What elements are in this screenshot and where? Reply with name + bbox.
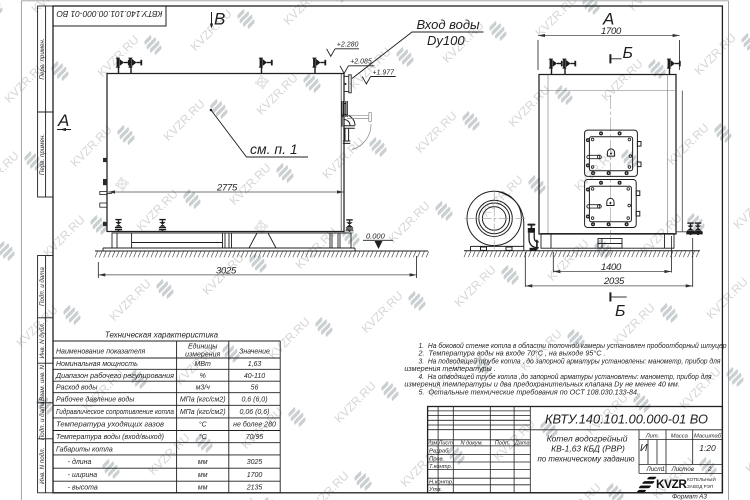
- svg-text:1400: 1400: [601, 262, 622, 273]
- svg-text:3025: 3025: [247, 459, 263, 466]
- svg-text:5. Остальные технические треб: 5. Остальные технические требования по О…: [419, 388, 639, 397]
- svg-text:KVZR.RU: KVZR.RU: [545, 237, 592, 284]
- svg-text:Дата: Дата: [514, 440, 530, 446]
- svg-text:KVZR.RU: KVZR.RU: [479, 173, 526, 220]
- svg-text:°С: °С: [199, 421, 208, 429]
- svg-text:KVZR.RU: KVZR.RU: [599, 57, 646, 104]
- svg-text:KVZR.RU: KVZR.RU: [161, 97, 208, 144]
- svg-text:Гидравлическое сопротивление к: Гидравлическое сопротивление котла: [56, 408, 174, 416]
- svg-text:KVZR.RU: KVZR.RU: [731, 185, 750, 232]
- svg-text:Формат: Формат: [672, 493, 698, 500]
- svg-text:2: 2: [707, 466, 712, 473]
- svg-text:измерения: измерения: [185, 351, 220, 358]
- svg-text:2035: 2035: [603, 276, 625, 287]
- svg-text:N докум.: N докум.: [460, 440, 483, 446]
- svg-text:мм: мм: [198, 485, 208, 492]
- svg-text:KVZR.RU: KVZR.RU: [134, 187, 181, 234]
- svg-text:KVZR.RU: KVZR.RU: [452, 263, 499, 310]
- svg-text:Б: Б: [623, 45, 633, 62]
- svg-text:1:20: 1:20: [699, 443, 716, 453]
- svg-text:+2.085: +2.085: [350, 59, 372, 66]
- svg-text:Перв. примен.: Перв. примен.: [39, 134, 46, 175]
- svg-text:+2.280: +2.280: [337, 42, 359, 49]
- svg-text:0.000: 0.000: [366, 232, 386, 241]
- svg-text:KVZR.RU: KVZR.RU: [0, 149, 22, 196]
- svg-text:Пров.: Пров.: [429, 456, 444, 462]
- svg-text:- длина: - длина: [56, 458, 92, 466]
- svg-text:KVZR.RU: KVZR.RU: [665, 121, 712, 168]
- svg-text:Вход воды: Вход воды: [417, 17, 481, 32]
- svg-text:3025: 3025: [216, 265, 237, 276]
- svg-text:Лист: Лист: [437, 440, 453, 446]
- svg-text:KVZR.RU: KVZR.RU: [413, 109, 460, 156]
- svg-text:KVZR.RU: KVZR.RU: [68, 123, 115, 170]
- svg-text:Расход воды: Расход воды: [56, 383, 98, 391]
- svg-text:Подп.: Подп.: [495, 440, 510, 446]
- svg-text:Н.контр.: Н.контр.: [429, 479, 454, 485]
- svg-text:Габариты котла: Габариты котла: [56, 445, 113, 453]
- svg-text:KVZR.RU: KVZR.RU: [557, 481, 604, 500]
- svg-text:KVZR.RU: KVZR.RU: [332, 379, 379, 426]
- svg-text:МПа (кгс/см2): МПа (кгс/см2): [180, 397, 226, 404]
- svg-text:KVZR.RU: KVZR.RU: [704, 275, 750, 322]
- svg-text:Значение: Значение: [239, 349, 270, 356]
- svg-text:Масса: Масса: [671, 433, 689, 439]
- svg-text:40-110: 40-110: [244, 373, 265, 380]
- svg-text:Инв. N дубл.: Инв. N дубл.: [39, 323, 46, 359]
- svg-text:- ширина: - ширина: [56, 472, 97, 479]
- svg-text:см. п. 1: см. п. 1: [250, 141, 298, 157]
- svg-text:Dy100: Dy100: [427, 33, 465, 48]
- svg-text:Лист: Лист: [646, 466, 663, 473]
- svg-text:Инв. N подл.: Инв. N подл.: [39, 448, 46, 484]
- svg-text:Диапазон рабочего регулировани: Диапазон рабочего регулирования: [55, 372, 174, 380]
- svg-text:Утв.: Утв.: [428, 487, 442, 493]
- svg-text:Температура воды (вход/выход): Температура воды (вход/выход): [56, 433, 164, 441]
- svg-text:Подп. и дата: Подп. и дата: [39, 267, 46, 306]
- svg-text:Взам. инв. N: Взам. инв. N: [39, 364, 46, 401]
- svg-text:КВ-1,63 КБД (РВР): КВ-1,63 КБД (РВР): [551, 444, 625, 454]
- svg-text:м3/ч: м3/ч: [196, 384, 211, 391]
- svg-text:мм: мм: [198, 472, 208, 479]
- svg-text:Номинальная мощность: Номинальная мощность: [56, 361, 138, 368]
- svg-text:Листов: Листов: [671, 466, 695, 473]
- svg-text:МВт: МВт: [195, 361, 212, 368]
- svg-text:А3: А3: [698, 493, 707, 500]
- svg-text:KVZR.RU: KVZR.RU: [107, 277, 154, 324]
- svg-text:2775: 2775: [216, 183, 238, 194]
- svg-text:Техническая характеристика: Техническая характеристика: [105, 331, 219, 340]
- svg-text:1700: 1700: [247, 472, 263, 479]
- svg-text:KVZR.RU: KVZR.RU: [41, 213, 88, 260]
- svg-text:ЗАВОД РЭП: ЗАВОД РЭП: [687, 484, 713, 489]
- svg-text:не более 280: не более 280: [233, 421, 276, 429]
- svg-text:KVZR.RU: KVZR.RU: [386, 199, 433, 246]
- svg-text:Перв. примен.: Перв. примен.: [39, 38, 46, 79]
- svg-text:Изм.: Изм.: [427, 440, 439, 446]
- svg-text:1,63: 1,63: [248, 361, 262, 368]
- svg-text:KVZR.RU: KVZR.RU: [320, 135, 367, 182]
- svg-text:Котел водогрейный: Котел водогрейный: [547, 434, 628, 444]
- svg-text:Подп. и дата: Подп. и дата: [39, 401, 46, 440]
- svg-text:МПа (кгс/см2): МПа (кгс/см2): [180, 409, 226, 416]
- svg-text:1: 1: [662, 466, 665, 473]
- svg-text:Наименование показателя: Наименование показателя: [56, 349, 146, 356]
- svg-text:В: В: [214, 10, 225, 29]
- svg-text:+1.977: +1.977: [372, 69, 395, 76]
- svg-text:2135: 2135: [246, 485, 263, 492]
- svg-text:KVZR.RU: KVZR.RU: [692, 31, 739, 78]
- svg-text:KVZR.RU: KVZR.RU: [743, 429, 750, 476]
- svg-text:И: И: [640, 442, 648, 454]
- svg-text:по техническому заданию: по техническому заданию: [538, 454, 636, 464]
- svg-text:KVZR.RU: KVZR.RU: [266, 315, 313, 362]
- svg-text:Разраб.: Разраб.: [429, 449, 450, 455]
- svg-text:Единицы: Единицы: [188, 343, 218, 351]
- svg-text:KVZR.RU: KVZR.RU: [626, 0, 673, 14]
- svg-text:мм: мм: [198, 459, 208, 466]
- svg-text:КОТЕЛЬНЫЙ: КОТЕЛЬНЫЙ: [687, 475, 716, 482]
- svg-text:70/95: 70/95: [246, 434, 264, 441]
- svg-text:КВТУ.140.101.00.000-01 ВО: КВТУ.140.101.00.000-01 ВО: [545, 411, 708, 426]
- svg-text:Температура уходящих газов: Температура уходящих газов: [56, 421, 164, 429]
- svg-text:KVZR.RU: KVZR.RU: [212, 495, 259, 500]
- svg-text:Б: Б: [615, 303, 625, 320]
- svg-text:KVZR: KVZR: [656, 477, 687, 491]
- svg-text:КВТУ.140.101.00.000-01 ВО: КВТУ.140.101.00.000-01 ВО: [56, 9, 163, 18]
- svg-text:1700: 1700: [601, 26, 622, 37]
- svg-text:%: %: [200, 373, 206, 380]
- svg-text:KVZR.RU: KVZR.RU: [281, 0, 328, 28]
- svg-text:KVZR.RU: KVZR.RU: [506, 83, 553, 130]
- svg-text:°С: °С: [199, 433, 208, 441]
- svg-text:56: 56: [251, 384, 259, 391]
- svg-text:Рабочее давление воды: Рабочее давление воды: [56, 396, 135, 404]
- svg-text:Т.контр.: Т.контр.: [429, 464, 452, 470]
- svg-text:0,06 (0,6): 0,06 (0,6): [240, 409, 270, 416]
- svg-text:Масштаб: Масштаб: [694, 433, 722, 439]
- svg-text:- высота: - высота: [56, 485, 98, 492]
- svg-text:0,6 (6,0): 0,6 (6,0): [241, 397, 267, 404]
- svg-text:А: А: [57, 111, 69, 130]
- svg-text:KVZR.RU: KVZR.RU: [359, 289, 406, 336]
- svg-text:KVZR.RU: KVZR.RU: [305, 469, 352, 500]
- svg-text:Лит.: Лит.: [645, 433, 660, 439]
